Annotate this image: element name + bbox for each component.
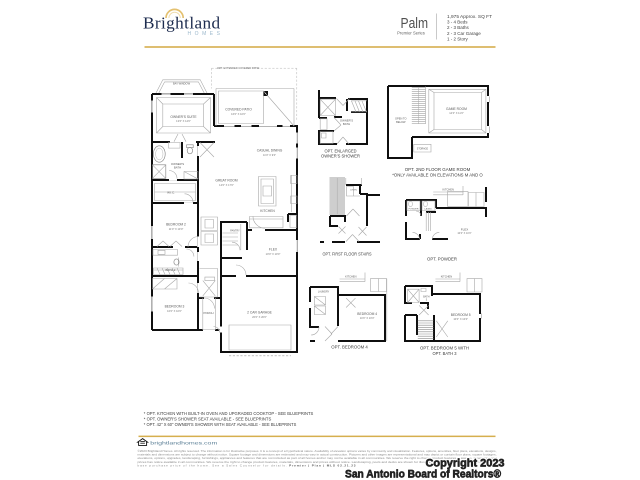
svg-text:W.I.C.: W.I.C. — [167, 190, 175, 194]
svg-text:GAME ROOM: GAME ROOM — [446, 107, 467, 111]
svg-text:OPT. EXTENDED COVERED PATIO: OPT. EXTENDED COVERED PATIO — [217, 66, 259, 70]
svg-text:FLEX: FLEX — [269, 248, 278, 252]
svg-text:14’0” X 11’0”: 14’0” X 11’0” — [449, 111, 464, 115]
svg-text:OPEN TO: OPEN TO — [395, 117, 407, 121]
svg-text:POWDER: POWDER — [409, 209, 419, 211]
svg-text:OPT. ENLARGED: OPT. ENLARGED — [325, 148, 357, 153]
svg-text:1,975 Approx. SQ FT: 1,975 Approx. SQ FT — [447, 14, 492, 19]
svg-text:* OPT. OWNER'S SHOWER SEAT AVA: * OPT. OWNER'S SHOWER SEAT AVAILABLE - S… — [144, 417, 272, 422]
svg-text:OPT. BEDROOM 4: OPT. BEDROOM 4 — [331, 345, 368, 350]
svg-text:BEDROOM 3: BEDROOM 3 — [165, 305, 185, 309]
svg-text:OPT. POWDER: OPT. POWDER — [427, 256, 457, 261]
svg-text:BEDROOM 5: BEDROOM 5 — [451, 313, 471, 317]
svg-text:BATH 2: BATH 2 — [165, 268, 175, 272]
svg-text:KITCHEN: KITCHEN — [443, 188, 455, 192]
svg-text:PANTRY: PANTRY — [230, 230, 240, 233]
svg-text:BELOW: BELOW — [396, 120, 406, 124]
svg-text:PORCH: PORCH — [203, 311, 213, 315]
svg-text:OPT. BEDROOM 5 WITH: OPT. BEDROOM 5 WITH — [420, 345, 469, 350]
svg-text:10’0” X 10’0”: 10’0” X 10’0” — [360, 316, 375, 320]
svg-text:13’6” X 14’0”: 13’6” X 14’0” — [176, 119, 191, 123]
svg-text:14’0” X 17’0”: 14’0” X 17’0” — [219, 183, 234, 187]
svg-text:*ONLY AVAILABLE ON ELEVATIONS: *ONLY AVAILABLE ON ELEVATIONS M AND O — [392, 172, 483, 177]
svg-text:LAUND.: LAUND. — [424, 208, 432, 211]
svg-text:CASUAL DINING: CASUAL DINING — [257, 149, 283, 153]
svg-text:OPT. FIRST FLOOR STAIRS: OPT. FIRST FLOOR STAIRS — [323, 252, 372, 257]
svg-text:OPT. 2ND FLOOR GAME ROOM: OPT. 2ND FLOOR GAME ROOM — [405, 167, 471, 172]
svg-text:10’0” X 10’0”: 10’0” X 10’0” — [167, 309, 182, 313]
svg-text:11’0” X 9’0”: 11’0” X 9’0” — [263, 153, 276, 157]
svg-text:brightlandhomes.com: brightlandhomes.com — [150, 441, 217, 447]
svg-text:COVERED PATIO: COVERED PATIO — [225, 108, 252, 112]
svg-text:STORAGE: STORAGE — [417, 147, 429, 150]
svg-text:20’0” X 20’0”: 20’0” X 20’0” — [252, 315, 267, 319]
svg-text:BATH: BATH — [174, 165, 181, 169]
svg-text:San Antonio Board of Realtors®: San Antonio Board of Realtors® — [345, 469, 502, 480]
svg-text:1 - 2 Story: 1 - 2 Story — [447, 36, 469, 41]
svg-text:16’0” X 10’0”: 16’0” X 10’0” — [231, 112, 246, 116]
svg-text:GREAT ROOM: GREAT ROOM — [215, 179, 237, 183]
svg-text:OWNER’S SUITE: OWNER’S SUITE — [170, 115, 197, 119]
svg-text:FLEX: FLEX — [461, 227, 469, 231]
svg-text:11’0” X 10’0”: 11’0” X 10’0” — [169, 227, 184, 231]
svg-text:KITCHEN: KITCHEN — [260, 209, 275, 213]
svg-text:KITCHEN: KITCHEN — [345, 274, 357, 278]
svg-text:LAUNDRY: LAUNDRY — [318, 291, 330, 294]
svg-text:BATH: BATH — [343, 122, 350, 126]
svg-text:10’0” X 10’0”: 10’0” X 10’0” — [457, 232, 471, 235]
svg-text:2 - 3 Baths: 2 - 3 Baths — [447, 25, 470, 30]
svg-text:10’0” X 10’0”: 10’0” X 10’0” — [266, 252, 281, 256]
svg-text:BEDROOM 4: BEDROOM 4 — [357, 312, 377, 316]
svg-text:Premier Series: Premier Series — [397, 31, 425, 36]
svg-text:3 - 4 Beds: 3 - 4 Beds — [447, 20, 468, 25]
svg-text:OWNER’S SHOWER: OWNER’S SHOWER — [321, 154, 360, 159]
svg-text:KITCHEN: KITCHEN — [441, 274, 453, 278]
svg-text:OPT. BATH 3: OPT. BATH 3 — [433, 351, 458, 356]
svg-text:BEDROOM 2: BEDROOM 2 — [166, 223, 186, 227]
svg-text:BAY WINDOW: BAY WINDOW — [173, 81, 191, 85]
svg-text:10’0” X 10’0”: 10’0” X 10’0” — [453, 317, 468, 321]
svg-text:2 CAR GARAGE: 2 CAR GARAGE — [247, 311, 273, 315]
svg-text:base purchase price of the hom: base purchase price of the home. See a S… — [138, 464, 356, 468]
svg-text:Brightland: Brightland — [143, 14, 221, 33]
svg-text:2 - 3 Car Garage: 2 - 3 Car Garage — [447, 31, 481, 36]
svg-text:* OPT. KITCHEN WITH BUILT-IN O: * OPT. KITCHEN WITH BUILT-IN OVEN AND UP… — [144, 411, 314, 416]
svg-text:* OPT. 42" X 60" OWNER'S SHOWE: * OPT. 42" X 60" OWNER'S SHOWER WITH SEA… — [144, 422, 297, 427]
